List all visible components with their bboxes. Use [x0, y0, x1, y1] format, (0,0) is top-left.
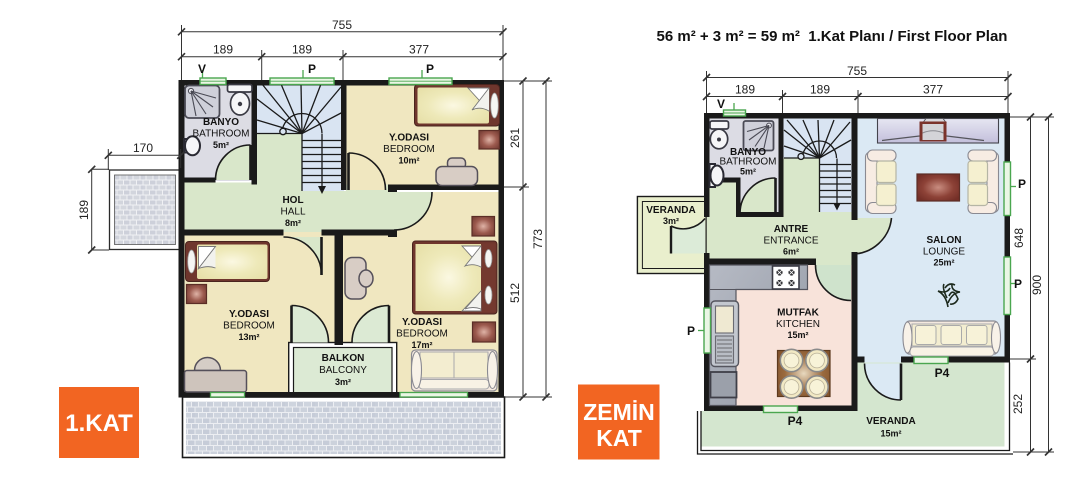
svg-text:HOL: HOL [282, 195, 303, 206]
svg-text:189: 189 [292, 43, 312, 57]
svg-text:BALKON: BALKON [322, 353, 365, 364]
svg-text:ANTRE: ANTRE [774, 224, 809, 235]
svg-text:P: P [687, 324, 695, 338]
svg-text:5m²: 5m² [740, 167, 756, 177]
svg-text:773: 773 [531, 229, 545, 249]
svg-text:189: 189 [213, 43, 233, 57]
svg-text:261: 261 [508, 128, 522, 148]
svg-text:VERANDA: VERANDA [866, 416, 915, 427]
svg-text:BEDROOM: BEDROOM [383, 144, 435, 155]
svg-text:56 m² + 3 m² = 59 m² 1.Kat Pl: 56 m² + 3 m² = 59 m² 1.Kat Planı / First… [657, 28, 1008, 45]
svg-text:189: 189 [77, 200, 91, 220]
svg-text:Y.ODASI: Y.ODASI [402, 317, 442, 328]
svg-text:17m²: 17m² [411, 340, 432, 350]
svg-text:189: 189 [810, 83, 830, 97]
svg-text:252: 252 [1011, 394, 1025, 414]
svg-text:P4: P4 [788, 414, 803, 428]
svg-text:8m²: 8m² [285, 218, 301, 228]
svg-text:15m²: 15m² [787, 330, 808, 340]
svg-text:BALCONY: BALCONY [319, 365, 367, 376]
svg-text:HALL: HALL [280, 207, 305, 218]
svg-text:Y.ODASI: Y.ODASI [229, 309, 269, 320]
svg-text:P4: P4 [935, 366, 950, 380]
svg-text:3m²: 3m² [663, 216, 679, 226]
svg-text:VERANDA: VERANDA [646, 205, 695, 216]
svg-text:755: 755 [332, 18, 352, 32]
svg-text:1.KAT: 1.KAT [65, 410, 133, 437]
svg-text:170: 170 [133, 141, 153, 155]
svg-text:P: P [426, 62, 434, 76]
svg-text:10m²: 10m² [398, 156, 419, 166]
svg-text:648: 648 [1012, 228, 1026, 248]
svg-text:25m²: 25m² [933, 258, 954, 268]
svg-text:3m²: 3m² [335, 377, 351, 387]
svg-text:P: P [1018, 177, 1026, 191]
svg-text:Y.ODASI: Y.ODASI [389, 133, 429, 144]
svg-text:P: P [1014, 277, 1022, 291]
svg-text:6m²: 6m² [783, 247, 799, 257]
svg-text:BATHROOM: BATHROOM [192, 129, 249, 140]
svg-text:KAT: KAT [596, 425, 642, 451]
svg-text:ZEMİN: ZEMİN [583, 399, 655, 425]
svg-text:900: 900 [1030, 275, 1044, 295]
svg-text:LOUNGE: LOUNGE [923, 247, 966, 258]
svg-text:SALON: SALON [927, 235, 962, 246]
svg-text:MUTFAK: MUTFAK [777, 308, 819, 319]
svg-text:5m²: 5m² [213, 140, 229, 150]
svg-text:377: 377 [923, 83, 943, 97]
svg-text:V: V [198, 62, 206, 76]
svg-text:P: P [308, 62, 316, 76]
svg-text:512: 512 [508, 283, 522, 303]
svg-text:755: 755 [847, 64, 867, 78]
svg-text:15m²: 15m² [880, 429, 901, 439]
svg-text:V: V [717, 97, 725, 111]
svg-text:BEDROOM: BEDROOM [223, 321, 275, 332]
svg-text:KITCHEN: KITCHEN [776, 319, 820, 330]
svg-text:BANYO: BANYO [203, 117, 239, 128]
svg-text:ENTRANCE: ENTRANCE [763, 236, 818, 247]
svg-text:BEDROOM: BEDROOM [396, 329, 448, 340]
svg-text:189: 189 [735, 83, 755, 97]
svg-text:13m²: 13m² [238, 332, 259, 342]
svg-text:377: 377 [409, 43, 429, 57]
